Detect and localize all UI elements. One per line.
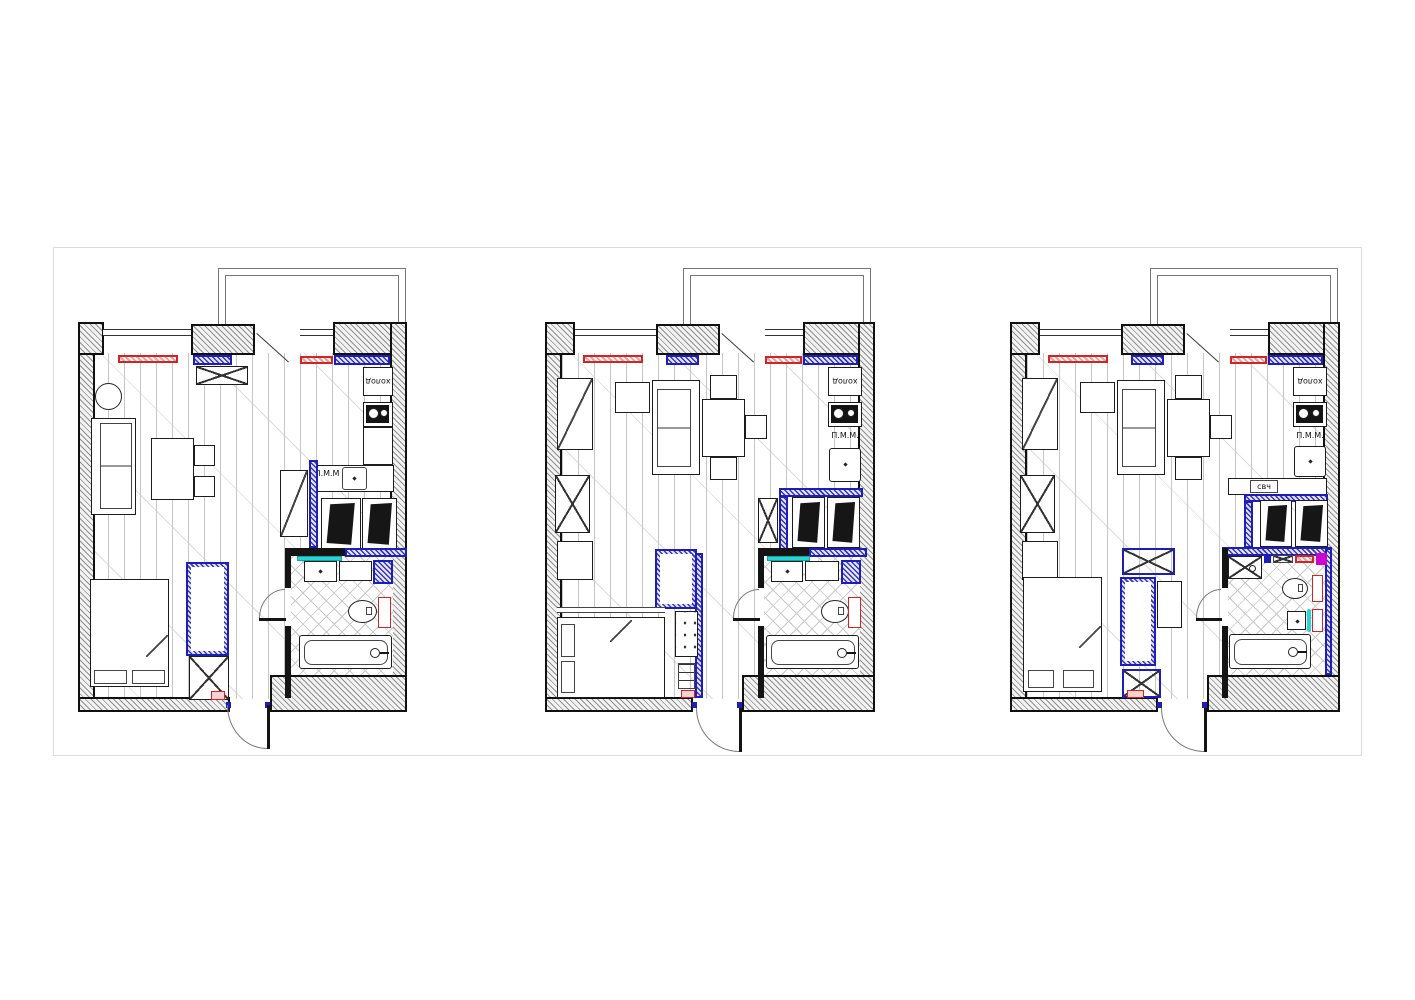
blue-marker — [1264, 556, 1271, 563]
dishwasher-label: П.М.М. — [1293, 429, 1327, 443]
floor-plan-variant-2: холод П.М.М. — [545, 245, 885, 760]
burner — [1312, 409, 1320, 417]
red-marker — [681, 690, 695, 698]
partition-strip — [666, 355, 699, 365]
bathroom-wall-left — [758, 548, 764, 588]
appliance-box — [321, 498, 361, 550]
faucet-stub — [1298, 651, 1307, 653]
bed — [557, 617, 665, 698]
tv-stand — [196, 366, 248, 385]
bathroom-sink — [1287, 611, 1306, 630]
wall-corner-top-left — [545, 322, 575, 355]
wardrobe-panel — [1157, 581, 1182, 628]
radiator — [118, 355, 178, 363]
bedroom-partition — [557, 607, 665, 613]
wall-bottom-left — [1010, 697, 1158, 712]
toilet-flush — [366, 607, 372, 615]
balcony-inner-outline — [690, 275, 864, 328]
entrance-door-arc — [1161, 708, 1204, 752]
kitchen-sink — [342, 467, 367, 490]
burner — [847, 409, 855, 417]
side-table — [1080, 382, 1115, 413]
wall-bottom-left — [545, 697, 693, 712]
fridge-label: холод — [829, 368, 861, 395]
floor-plan-sheet: холод П.М.М — [0, 0, 1415, 1000]
wardrobe-rail — [1125, 582, 1151, 661]
entrance-door-leaf — [1204, 708, 1207, 752]
towel-radiator — [378, 597, 391, 628]
chair — [1210, 415, 1232, 439]
shower-tray — [1228, 556, 1262, 579]
towel-radiator — [1312, 575, 1323, 602]
appliance-dark — [797, 502, 821, 544]
tall-cabinet — [280, 470, 308, 537]
dishwasher-label: П.М.М. — [828, 429, 862, 443]
bathroom-wall-left — [758, 626, 764, 698]
drain-dot — [1295, 619, 1299, 623]
bathroom-wall-top-blue — [809, 548, 867, 557]
radiator — [583, 355, 643, 363]
cooktop — [363, 402, 393, 427]
kitchen-counter — [363, 427, 393, 465]
toilet-flush — [838, 607, 844, 615]
sofa — [91, 418, 136, 515]
appliance-box — [827, 497, 860, 548]
side-table — [615, 382, 650, 413]
sofa-cushions — [100, 423, 132, 509]
wardrobe — [655, 549, 697, 609]
pillow — [561, 624, 575, 657]
bathroom-sink — [771, 561, 803, 582]
wardrobe-rail — [660, 554, 692, 604]
cabinet — [555, 475, 590, 533]
wardrobe-rail — [191, 567, 224, 651]
bathroom-wall-left — [285, 626, 291, 698]
appliance-box — [362, 498, 397, 550]
floor-plan-variant-3: холод П.М.М. свч — [1010, 245, 1350, 760]
bath-faucet — [370, 648, 380, 658]
towel-radiator — [848, 597, 861, 628]
partition-strip — [334, 355, 390, 365]
radiator — [300, 356, 333, 364]
bath-faucet — [837, 648, 847, 658]
balcony-inner-outline — [225, 275, 399, 328]
tall-cabinet — [758, 498, 778, 543]
pillow — [1063, 670, 1094, 688]
toilet — [1282, 578, 1308, 599]
chair — [745, 415, 767, 439]
bathroom-wall-left — [1222, 626, 1228, 698]
cooktop — [828, 402, 862, 427]
bathroom-sink — [304, 561, 337, 582]
bathroom-wall-top — [764, 548, 809, 556]
dining-table — [1167, 399, 1210, 457]
entrance-door-leaf — [739, 708, 742, 752]
appliance-dark — [1265, 505, 1288, 543]
sofa-cushions — [657, 389, 691, 467]
cabinet — [1020, 475, 1055, 533]
microwave-label: свч — [1250, 480, 1278, 493]
partition-blue — [1244, 501, 1253, 548]
vanity-symbol — [1273, 555, 1293, 563]
bathtub — [1229, 634, 1311, 669]
fridge: холод — [828, 367, 862, 396]
drain-dot — [785, 569, 789, 573]
partition-strip — [193, 355, 232, 365]
shelves — [678, 663, 695, 689]
bathtub — [299, 635, 392, 669]
bed — [1023, 577, 1102, 692]
magenta-marker — [1316, 553, 1327, 565]
partition-blue — [779, 488, 863, 497]
shoe-cabinet — [675, 611, 698, 657]
pillow — [561, 661, 575, 693]
fridge-label: холод — [1294, 368, 1326, 395]
bathroom-wall-right-blue — [1325, 548, 1332, 675]
partition-strip — [1268, 355, 1323, 365]
window-right — [300, 329, 333, 336]
towel-radiator — [1312, 609, 1323, 632]
wardrobe-cabinet — [557, 378, 593, 450]
toilet — [821, 600, 849, 623]
red-marker — [1127, 690, 1144, 698]
burner — [380, 409, 388, 417]
appliance-box — [1295, 500, 1328, 547]
window-left — [1040, 329, 1121, 336]
wall-pier — [656, 324, 720, 355]
window-right — [765, 329, 803, 336]
coffee-table — [151, 438, 194, 500]
appliance-box — [792, 497, 825, 548]
wall-corner-top-left — [78, 322, 104, 355]
window-left — [575, 329, 656, 336]
cabinet-top — [1122, 548, 1175, 575]
drain-dot — [843, 462, 847, 466]
entrance-door-arc — [227, 705, 267, 749]
radiator — [1048, 355, 1108, 363]
appliance-dark — [326, 503, 356, 546]
cabinet — [1022, 541, 1058, 580]
appliance-dark — [367, 503, 393, 546]
bath-faucet — [1288, 647, 1298, 657]
appliance-dark — [1300, 505, 1324, 543]
toilet-flush — [1298, 584, 1303, 592]
wardrobe — [1120, 577, 1156, 666]
toilet — [348, 600, 377, 623]
drain-dot — [352, 476, 356, 480]
entrance-door-leaf — [267, 705, 270, 749]
bathroom-door-leaf — [1196, 618, 1222, 621]
glass-screen — [1307, 609, 1311, 632]
balcony-inner-outline — [1157, 275, 1331, 328]
cooktop — [1293, 402, 1327, 427]
sofa-cushions — [1122, 389, 1156, 467]
chair — [1175, 457, 1202, 480]
kitchen-sink — [1294, 446, 1326, 477]
window-left — [103, 329, 192, 336]
round-table — [95, 383, 122, 410]
faucet-stub — [380, 652, 389, 654]
bathroom-wall-top-blue — [345, 548, 407, 557]
bathroom-counter — [339, 561, 372, 581]
sofa — [652, 380, 700, 475]
bathtub — [766, 635, 859, 669]
washing-machine — [373, 560, 393, 584]
chair — [710, 457, 737, 480]
bathroom-door-leaf — [733, 618, 760, 621]
bed — [90, 579, 169, 687]
cabinet — [557, 541, 593, 580]
pillow — [132, 670, 165, 684]
bathroom-wall-top — [291, 548, 345, 556]
blanket-fold — [610, 620, 632, 642]
pillow — [1028, 670, 1054, 688]
washing-machine — [841, 560, 861, 584]
wall-pier — [1121, 324, 1185, 355]
sofa — [1117, 380, 1165, 475]
blanket-fold — [1079, 626, 1101, 648]
chair — [1175, 375, 1202, 399]
fridge: холод — [363, 367, 393, 396]
wall-corner-top-left — [1010, 322, 1040, 355]
partition-blue — [779, 496, 788, 550]
bathroom-wall-left — [285, 548, 291, 588]
bathroom-door-leaf — [259, 618, 286, 621]
partition-blue — [309, 460, 318, 548]
wardrobe — [186, 562, 229, 656]
kitchen-sink — [829, 448, 861, 482]
appliance-box — [1260, 500, 1292, 547]
fridge: холод — [1293, 367, 1327, 396]
burner — [1298, 408, 1309, 419]
faucet-stub — [847, 652, 856, 654]
drain-dot — [318, 569, 322, 573]
burner — [368, 408, 379, 419]
radiator — [1230, 356, 1267, 364]
fridge-label: холод — [364, 368, 392, 395]
drain-dot — [1308, 459, 1312, 463]
red-marker — [211, 691, 225, 700]
bathroom-counter — [805, 561, 839, 581]
appliance-dark — [832, 502, 856, 544]
wardrobe-cabinet — [1022, 378, 1058, 450]
radiator — [765, 356, 802, 364]
dining-table — [702, 399, 745, 457]
window-right — [1230, 329, 1268, 336]
wall-pier — [191, 324, 255, 355]
chair — [194, 445, 215, 466]
chair — [710, 375, 737, 399]
chair — [194, 476, 215, 497]
floor-plan-variant-1: холод П.М.М — [75, 245, 415, 760]
burner — [833, 408, 844, 419]
blanket-fold — [146, 635, 168, 657]
shower-drain — [1249, 565, 1256, 572]
partition-strip — [803, 355, 858, 365]
entrance-door-arc — [696, 708, 739, 752]
red-counter-strip — [1295, 555, 1314, 563]
pillow — [94, 670, 127, 684]
partition-strip — [1131, 355, 1164, 365]
